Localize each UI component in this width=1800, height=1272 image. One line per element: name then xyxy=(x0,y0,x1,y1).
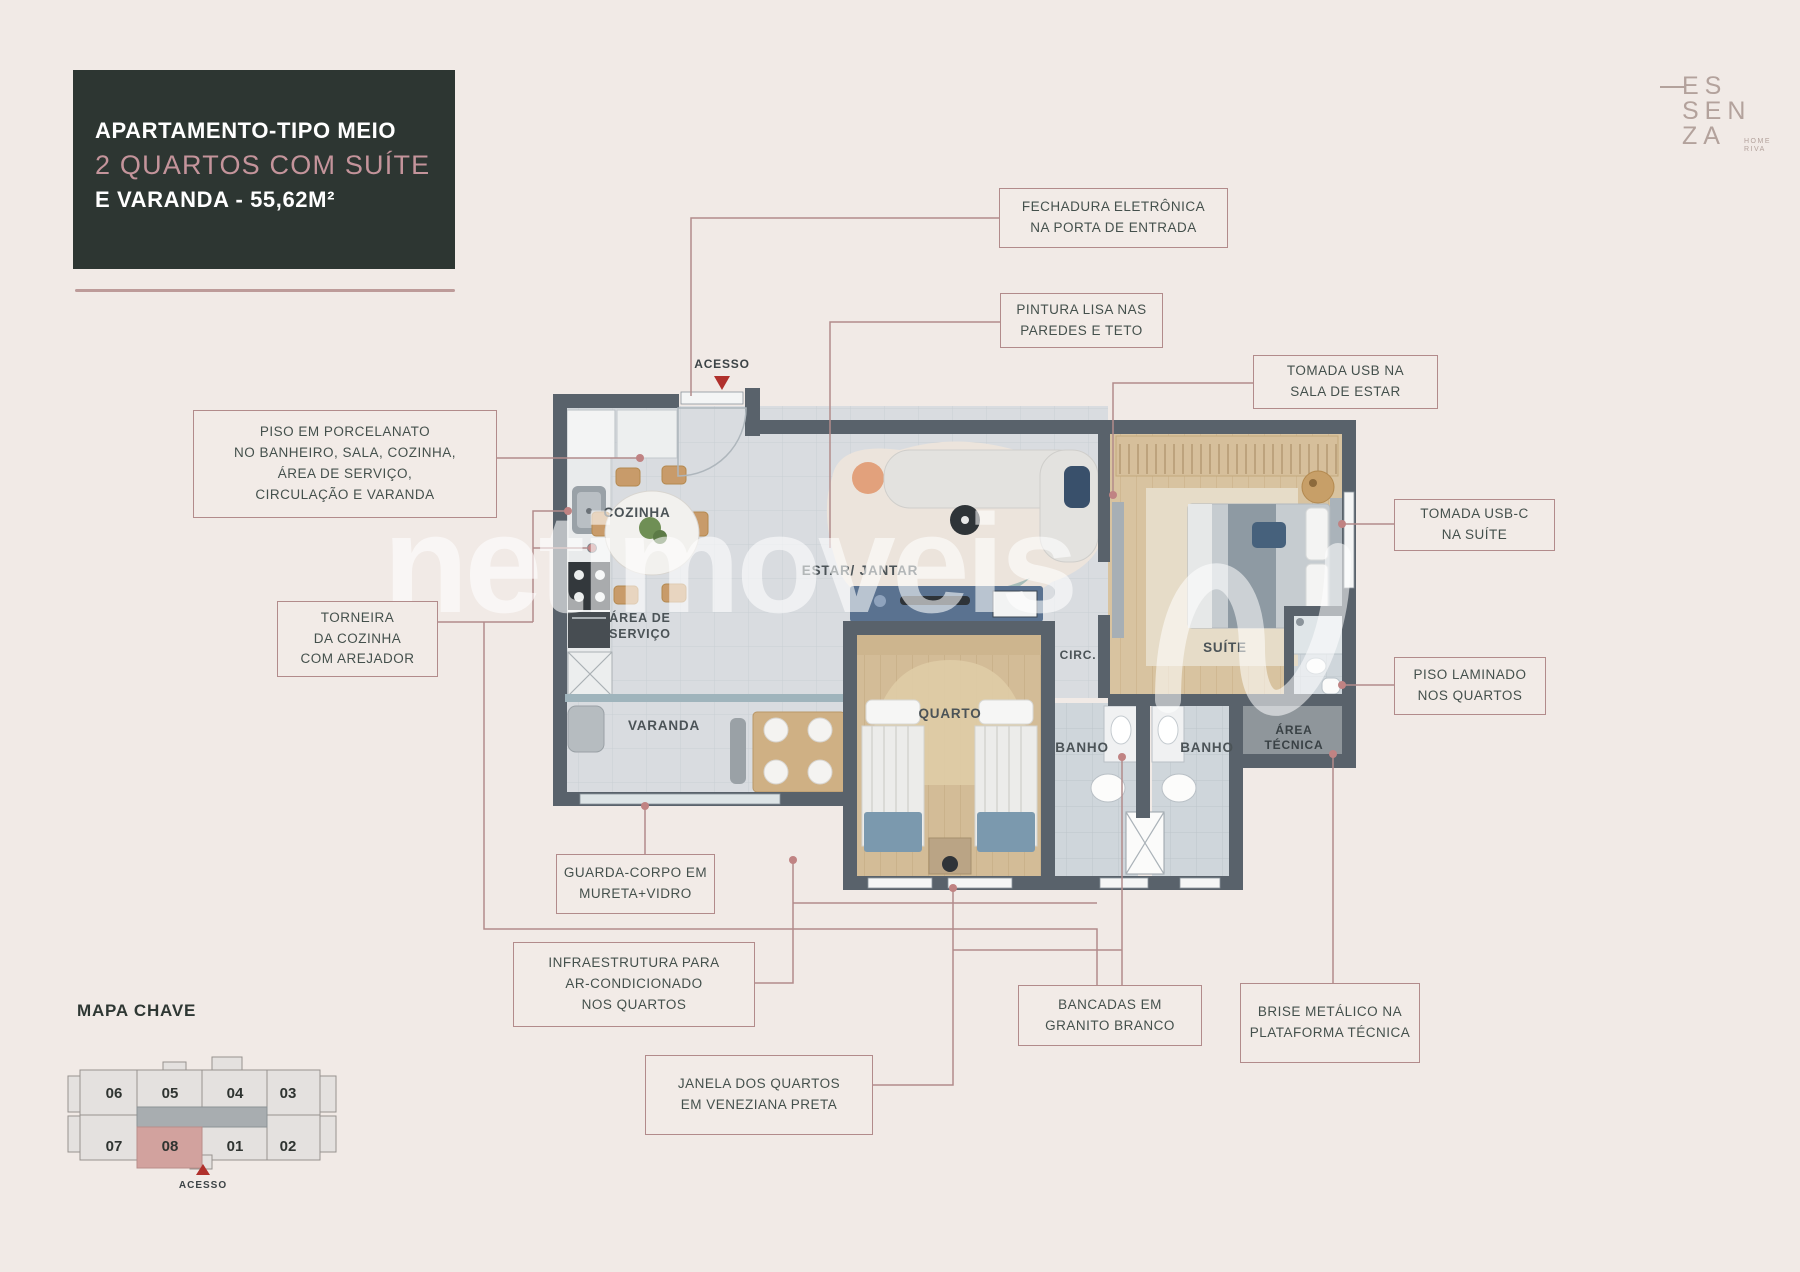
logo-line-1: ES xyxy=(1682,72,1727,100)
callout-piso-laminado: PISO LAMINADO NOS QUARTOS xyxy=(1394,657,1546,715)
callout-text: NO BANHEIRO, SALA, COZINHA, xyxy=(234,443,456,464)
callout-fechadura: FECHADURA ELETRÔNICA NA PORTA DE ENTRADA xyxy=(999,188,1228,248)
label-circ: CIRC. xyxy=(1060,648,1097,662)
callout-text: JANELA DOS QUARTOS xyxy=(678,1074,840,1095)
key-map-unit-07: 07 xyxy=(106,1138,123,1155)
callout-text: FECHADURA ELETRÔNICA xyxy=(1022,197,1205,218)
key-map-unit-01: 01 xyxy=(227,1138,244,1155)
callout-text: NOS QUARTOS xyxy=(582,995,687,1016)
label-suite: SUÍTE xyxy=(1203,640,1247,655)
label-cozinha: COZINHA xyxy=(603,505,670,520)
callout-text: DA COZINHA xyxy=(314,629,402,650)
callout-text: SALA DE ESTAR xyxy=(1290,382,1401,403)
callout-text: GUARDA-CORPO EM xyxy=(564,863,707,884)
callout-text: PAREDES E TETO xyxy=(1020,321,1143,342)
key-map-acesso-label: ACESSO xyxy=(179,1180,227,1191)
title-line-2: 2 QUARTOS COM SUÍTE xyxy=(95,146,435,184)
callout-janela: JANELA DOS QUARTOS EM VENEZIANA PRETA xyxy=(645,1055,873,1135)
key-map-core xyxy=(137,1107,267,1127)
label-area-servico-1: ÁREA DE xyxy=(609,610,670,625)
label-area-servico-2: SERVIÇO xyxy=(609,627,671,641)
label-estar-jantar: ESTAR/ JANTAR xyxy=(802,563,918,578)
callout-text: NA SUÍTE xyxy=(1442,525,1508,546)
callout-text: COM AREJADOR xyxy=(300,649,414,670)
label-varanda: VARANDA xyxy=(628,718,700,733)
callout-piso-porcelanato: PISO EM PORCELANATO NO BANHEIRO, SALA, C… xyxy=(193,410,497,518)
callout-text: BRISE METÁLICO NA xyxy=(1258,1002,1402,1023)
title-underline xyxy=(75,289,455,292)
callout-pintura: PINTURA LISA NAS PAREDES E TETO xyxy=(1000,293,1163,348)
callout-tomada-usb: TOMADA USB NA SALA DE ESTAR xyxy=(1253,355,1438,409)
callout-text: TOMADA USB NA xyxy=(1287,361,1404,382)
label-area-tecnica-2: TÉCNICA xyxy=(1265,737,1324,752)
callout-torneira: TORNEIRA DA COZINHA COM AREJADOR xyxy=(277,601,438,677)
key-map-unit-04: 04 xyxy=(227,1085,244,1102)
callout-brise: BRISE METÁLICO NA PLATAFORMA TÉCNICA xyxy=(1240,983,1420,1063)
title-line-3: E VARANDA - 55,62M² xyxy=(95,184,435,216)
label-acesso: ACESSO xyxy=(694,357,749,371)
callout-text: PLATAFORMA TÉCNICA xyxy=(1250,1023,1411,1044)
essenza-logo: ES SEN ZA HOME RIVA xyxy=(1682,74,1782,149)
brochure-page: ACESSO COZINHA ESTAR/ JANTAR ÁREA DE SER… xyxy=(0,0,1800,1272)
logo-dash-icon xyxy=(1660,86,1686,88)
callout-bancadas: BANCADAS EM GRANITO BRANCO xyxy=(1018,985,1202,1046)
key-map-unit-03: 03 xyxy=(280,1085,297,1102)
label-quarto: QUARTO xyxy=(918,706,981,721)
key-map: 06 05 04 03 07 08 01 02 ACESSO xyxy=(68,1057,336,1191)
logo-line-2: SEN xyxy=(1682,97,1751,125)
label-banho-2: BANHO xyxy=(1180,740,1234,755)
callout-text: PISO EM PORCELANATO xyxy=(260,422,430,443)
callout-text: BANCADAS EM xyxy=(1058,995,1162,1016)
logo-sub-2: RIVA xyxy=(1744,146,1771,154)
callout-text: CIRCULAÇÃO E VARANDA xyxy=(255,485,434,506)
callout-text: AR-CONDICIONADO xyxy=(565,974,702,995)
callout-text: MURETA+VIDRO xyxy=(579,884,692,905)
callout-text: NOS QUARTOS xyxy=(1418,686,1523,707)
logo-line-3: ZA xyxy=(1682,122,1726,150)
callout-text: PISO LAMINADO xyxy=(1413,665,1526,686)
key-map-unit-06: 06 xyxy=(106,1085,123,1102)
callout-guarda-corpo: GUARDA-CORPO EM MURETA+VIDRO xyxy=(556,854,715,914)
key-map-unit-05: 05 xyxy=(162,1085,179,1102)
callout-text: ÁREA DE SERVIÇO, xyxy=(278,464,413,485)
label-banho-1: BANHO xyxy=(1055,740,1109,755)
callout-text: PINTURA LISA NAS xyxy=(1016,300,1146,321)
label-area-tecnica-1: ÁREA xyxy=(1275,722,1312,737)
key-map-unit-08: 08 xyxy=(162,1138,179,1155)
callout-text: TOMADA USB-C xyxy=(1420,504,1529,525)
callout-infraestrutura: INFRAESTRUTURA PARA AR-CONDICIONADO NOS … xyxy=(513,942,755,1027)
acesso-arrow-icon xyxy=(714,376,730,390)
callout-text: INFRAESTRUTURA PARA xyxy=(548,953,719,974)
key-map-unit-02: 02 xyxy=(280,1138,297,1155)
key-map-title: MAPA CHAVE xyxy=(77,1001,196,1021)
title-line-1: APARTAMENTO-TIPO MEIO xyxy=(95,116,435,146)
callout-text: TORNEIRA xyxy=(321,608,395,629)
callout-tomada-usbc: TOMADA USB-C NA SUÍTE xyxy=(1394,499,1555,551)
callout-text: EM VENEZIANA PRETA xyxy=(681,1095,838,1116)
title-card: APARTAMENTO-TIPO MEIO 2 QUARTOS COM SUÍT… xyxy=(73,70,455,269)
callout-text: GRANITO BRANCO xyxy=(1045,1016,1175,1037)
callout-text: NA PORTA DE ENTRADA xyxy=(1030,218,1197,239)
logo-sub-1: HOME xyxy=(1744,138,1771,146)
